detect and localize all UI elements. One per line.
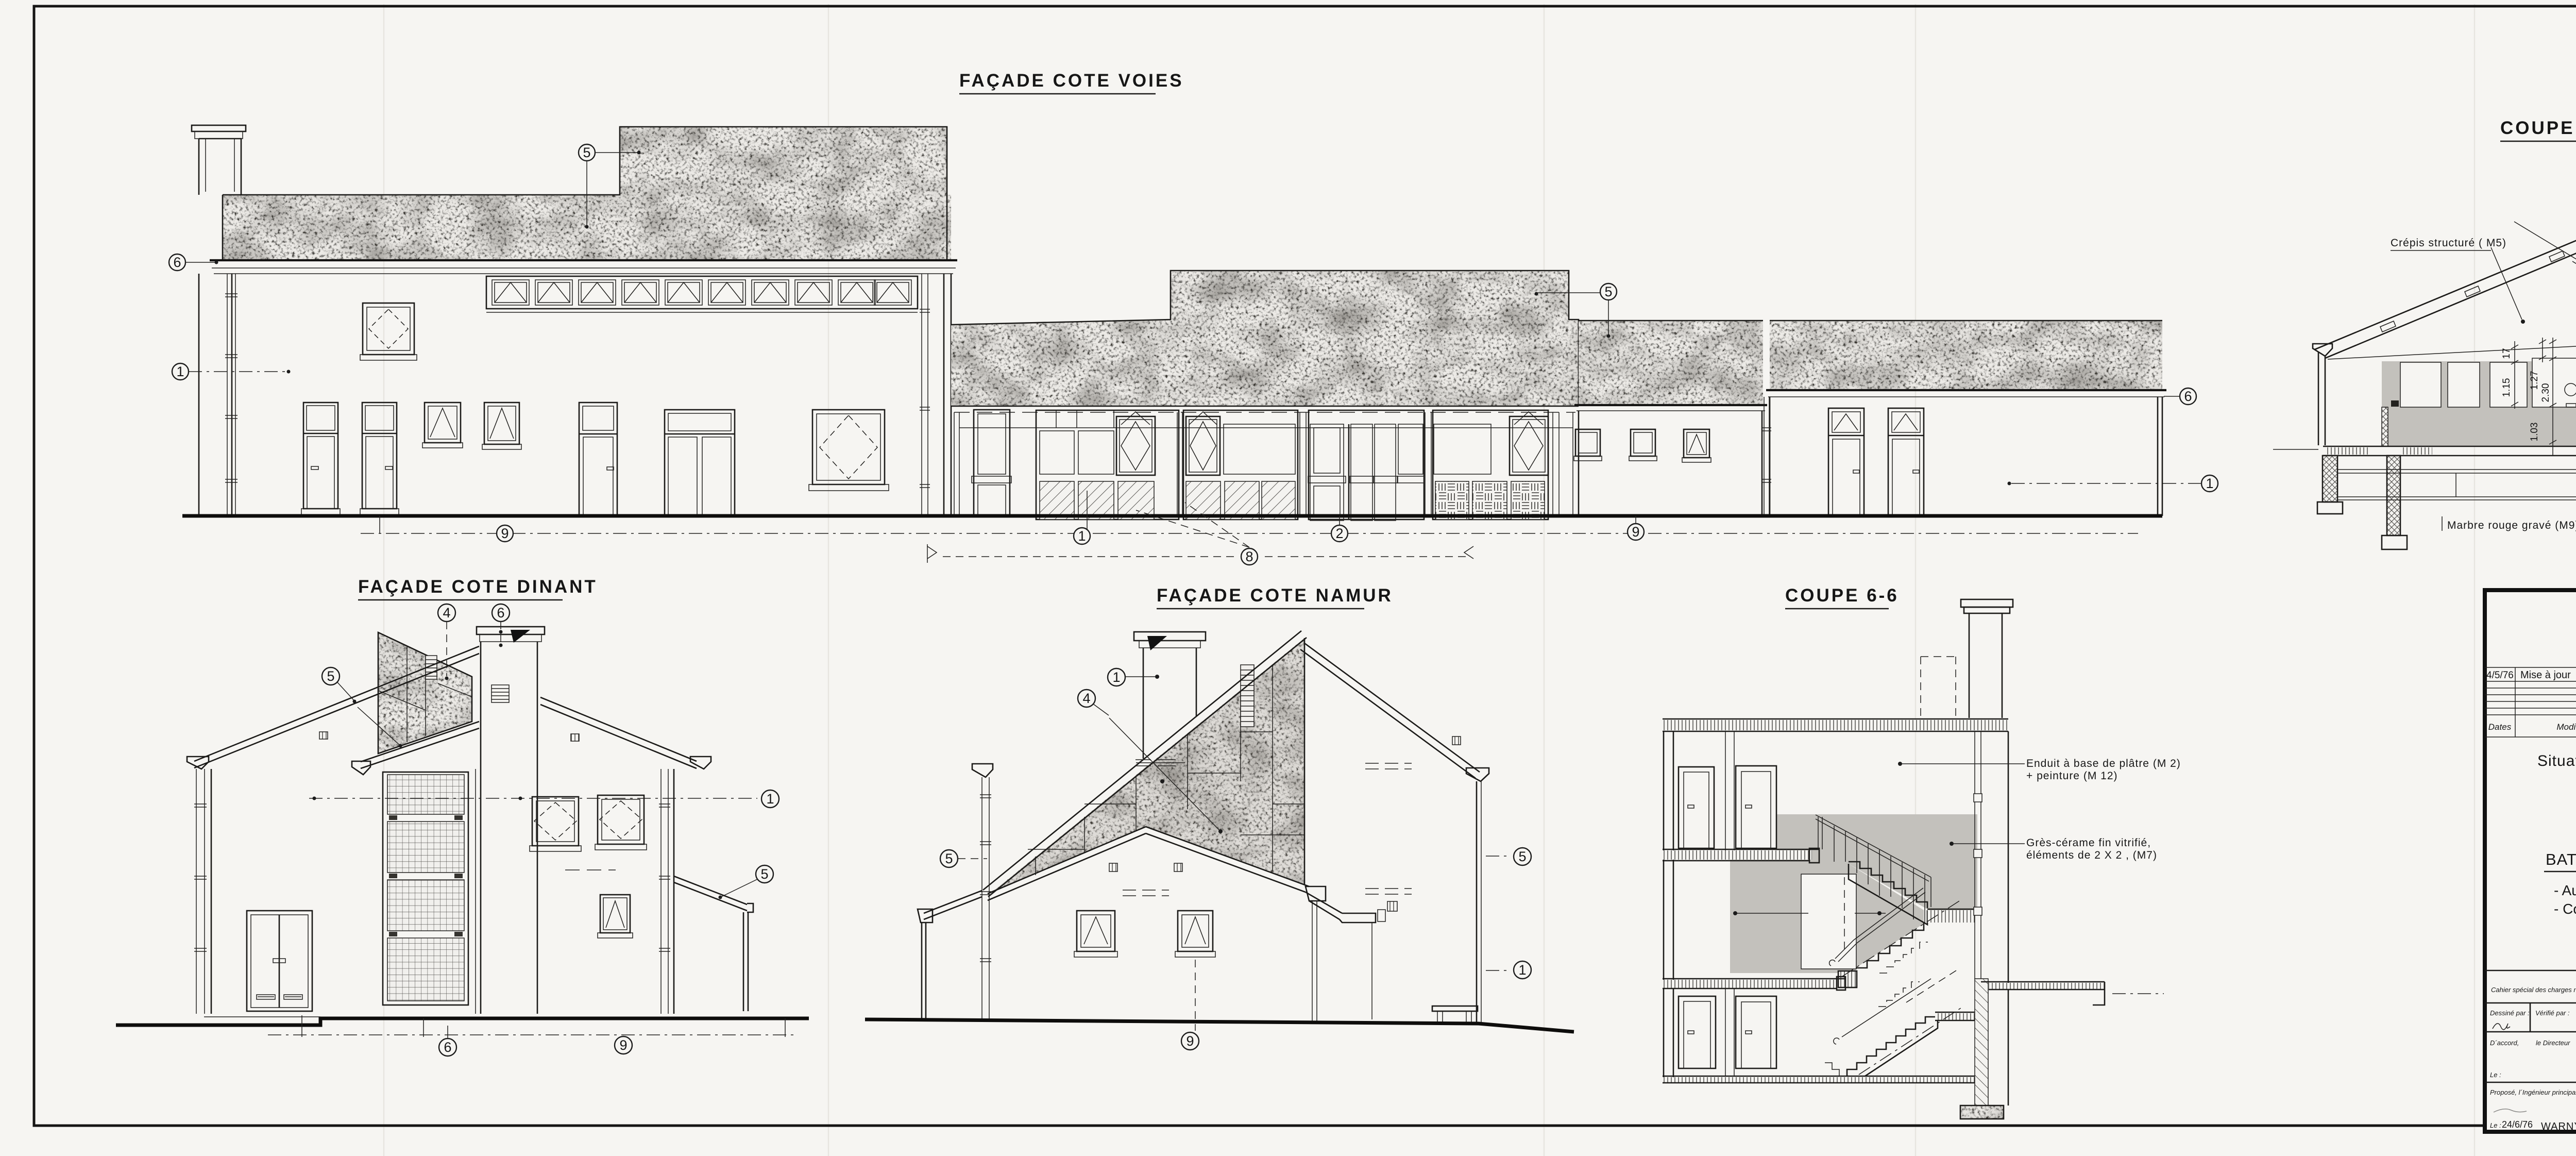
svg-text:Vérifié par :: Vérifié par : [2535,1009,2570,1017]
svg-text:1: 1 [176,364,184,379]
svg-text:1: 1 [1078,528,1086,544]
svg-text:1.03: 1.03 [2529,423,2540,442]
svg-text:FAÇADE COTE VOIES: FAÇADE COTE VOIES [959,71,1184,91]
svg-text:1: 1 [1112,669,1120,685]
svg-text:5: 5 [1604,284,1612,299]
svg-text:FAÇADE COTE NAMUR: FAÇADE COTE NAMUR [1157,585,1393,606]
svg-text:6: 6 [173,255,181,270]
svg-text:5: 5 [760,866,768,882]
svg-text:1: 1 [766,791,774,807]
svg-text:+ peinture (M 12): + peinture (M 12) [2026,770,2118,782]
svg-text:Situation:Commune d´YVOIR: Situation:Commune d´YVOIR [2537,752,2576,769]
svg-text:9: 9 [619,1037,627,1053]
svg-text:5: 5 [583,145,590,160]
svg-text:2.30: 2.30 [2540,383,2551,403]
svg-text:- Autres façades: - Autres façades [2554,882,2576,898]
svg-text:Enduit à base de plâtre (M 2): Enduit à base de plâtre (M 2) [2026,758,2181,769]
svg-text:6: 6 [2184,389,2192,404]
svg-text:4: 4 [1082,691,1090,706]
svg-text:le Directeur: le Directeur [2536,1039,2570,1047]
svg-text:4/5/76: 4/5/76 [2486,670,2514,681]
svg-text:Cahier spécial des charges nº: Cahier spécial des charges nº [2491,986,2576,994]
svg-text:9: 9 [1186,1033,1194,1049]
svg-text:1: 1 [1518,962,1526,978]
svg-text:Grès-cérame fin vitrifié,: Grès-cérame fin vitrifié, [2026,837,2151,849]
svg-text:5: 5 [327,668,334,684]
svg-text:Le :: Le : [2490,1121,2501,1129]
svg-text:Dessiné par :: Dessiné par : [2490,1009,2530,1017]
svg-text:Mise à jour: Mise à jour [2520,669,2571,681]
svg-text:6: 6 [444,1040,451,1055]
svg-text:8: 8 [1245,549,1253,564]
svg-text:2: 2 [1335,526,1343,541]
svg-text:1: 1 [2206,476,2213,491]
svg-text:4: 4 [443,605,450,621]
svg-text:COUPE 7-7: COUPE 7-7 [2500,118,2576,138]
svg-text:Marbre rouge gravé (M9): Marbre rouge gravé (M9) [2447,520,2576,531]
svg-text:WARNY: WARNY [2541,1121,2576,1132]
svg-text:FAÇADE COTE DINANT: FAÇADE COTE DINANT [358,577,598,597]
svg-text:Proposé, l´Ingénieur principal: Proposé, l´Ingénieur principal : [2490,1088,2576,1096]
svg-text:- Coupes : 6-6 , 7-7 .: - Coupes : 6-6 , 7-7 . [2554,901,2576,917]
svg-text:BATIMENT DES VOYAGEURS: BATIMENT DES VOYAGEURS [2546,850,2576,868]
svg-text:5: 5 [1518,849,1526,864]
svg-text:Le :: Le : [2490,1071,2501,1079]
svg-text:9: 9 [1632,524,1639,540]
svg-text:D´accord,: D´accord, [2490,1039,2519,1047]
svg-text:24/6/76: 24/6/76 [2502,1119,2533,1130]
svg-text:9: 9 [501,526,509,541]
svg-text:Modifications: Modifications [2556,722,2576,732]
svg-text:COUPE 6-6: COUPE 6-6 [1785,585,1899,606]
svg-text:1.15: 1.15 [2501,378,2512,397]
svg-text:éléments de 2 X 2 , (M7): éléments de 2 X 2 , (M7) [2026,849,2157,861]
svg-text:Crépis structuré ( M5): Crépis structuré ( M5) [2391,237,2506,249]
svg-text:6: 6 [497,605,504,621]
svg-text:5: 5 [945,851,953,866]
svg-text:1.27: 1.27 [2529,371,2540,390]
svg-text:Dates: Dates [2488,722,2512,732]
svg-text:17: 17 [2501,348,2512,359]
